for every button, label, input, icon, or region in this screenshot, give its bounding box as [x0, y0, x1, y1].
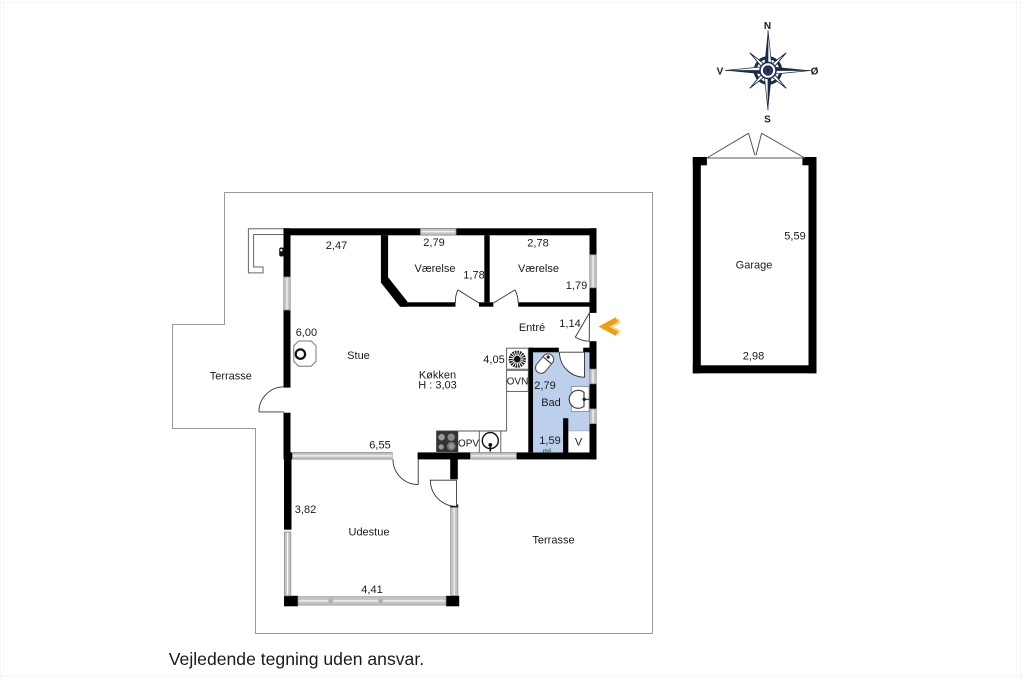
svg-text:6,55: 6,55: [369, 440, 390, 452]
svg-text:Værelse: Værelse: [415, 263, 456, 275]
svg-text:2,78: 2,78: [527, 238, 548, 250]
svg-text:V: V: [575, 437, 583, 449]
svg-text:Ø: Ø: [811, 66, 819, 77]
svg-text:5,59: 5,59: [784, 231, 805, 243]
svg-text:3,82: 3,82: [295, 504, 316, 516]
svg-text:Stue: Stue: [347, 350, 370, 362]
svg-text:1,79: 1,79: [566, 280, 587, 292]
svg-text:2,98: 2,98: [743, 351, 764, 363]
svg-text:m²: m²: [543, 449, 552, 456]
svg-text:N: N: [764, 21, 771, 32]
svg-text:4,41: 4,41: [361, 584, 382, 596]
svg-text:S: S: [764, 115, 771, 126]
svg-text:Vejledende tegning uden ansvar: Vejledende tegning uden ansvar.: [169, 649, 424, 669]
svg-text:Terrasse: Terrasse: [210, 371, 252, 383]
svg-text:V: V: [717, 66, 724, 77]
svg-text:Bad: Bad: [541, 397, 561, 409]
svg-text:1,78: 1,78: [463, 270, 484, 282]
svg-text:1,14: 1,14: [559, 318, 580, 330]
svg-text:4,05: 4,05: [483, 354, 504, 366]
svg-text:Udestue: Udestue: [349, 526, 390, 538]
svg-text:Værelse: Værelse: [518, 263, 559, 275]
svg-text:2,79: 2,79: [534, 380, 555, 392]
svg-text:2,47: 2,47: [326, 240, 347, 252]
svg-text:OVN: OVN: [507, 376, 529, 387]
svg-text:OPV: OPV: [458, 438, 479, 449]
svg-text:6,00: 6,00: [296, 327, 317, 339]
svg-text:2,79: 2,79: [423, 237, 444, 249]
svg-text:Entré: Entré: [519, 322, 545, 334]
svg-text:1,59: 1,59: [539, 435, 560, 447]
svg-text:H : 3,03: H : 3,03: [418, 380, 457, 392]
svg-text:Garage: Garage: [736, 260, 773, 272]
svg-text:Terrasse: Terrasse: [532, 535, 574, 547]
